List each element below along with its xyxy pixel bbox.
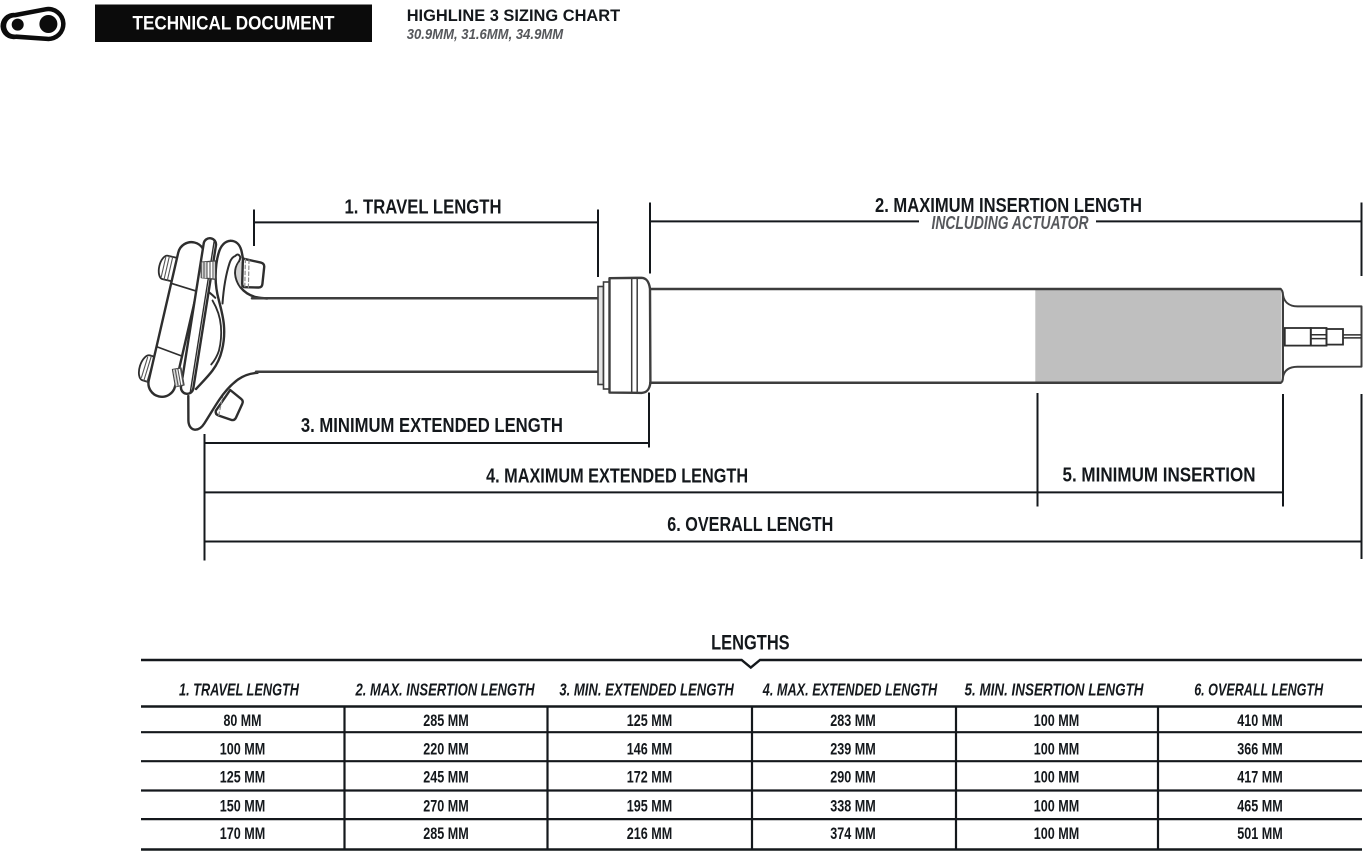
svg-text:HIGHLINE 3 SIZING CHART: HIGHLINE 3 SIZING CHART [407, 6, 621, 25]
svg-text:LENGTHS: LENGTHS [711, 631, 790, 654]
svg-text:100 MM: 100 MM [1034, 740, 1080, 758]
svg-text:INCLUDING ACTUATOR: INCLUDING ACTUATOR [932, 213, 1089, 233]
svg-text:100 MM: 100 MM [220, 740, 266, 758]
svg-text:1. TRAVEL LENGTH: 1. TRAVEL LENGTH [179, 680, 299, 700]
svg-text:374 MM: 374 MM [830, 825, 876, 843]
svg-text:100 MM: 100 MM [1034, 798, 1080, 816]
svg-text:170 MM: 170 MM [220, 825, 266, 843]
svg-text:216 MM: 216 MM [627, 825, 673, 843]
svg-text:270 MM: 270 MM [423, 798, 469, 816]
svg-text:TECHNICAL DOCUMENT: TECHNICAL DOCUMENT [133, 14, 335, 35]
svg-text:172 MM: 172 MM [627, 769, 673, 787]
svg-text:125 MM: 125 MM [220, 769, 266, 787]
svg-text:3. MIN. EXTENDED LENGTH: 3. MIN. EXTENDED LENGTH [559, 680, 734, 700]
svg-text:285 MM: 285 MM [423, 825, 469, 843]
svg-text:100 MM: 100 MM [1034, 712, 1080, 730]
svg-text:2. MAX. INSERTION LENGTH: 2. MAX. INSERTION LENGTH [355, 680, 535, 700]
svg-text:410 MM: 410 MM [1237, 712, 1283, 730]
svg-text:6. OVERALL LENGTH: 6. OVERALL LENGTH [1194, 680, 1323, 700]
svg-text:239 MM: 239 MM [830, 740, 876, 758]
svg-text:366 MM: 366 MM [1237, 740, 1283, 758]
svg-text:80 MM: 80 MM [224, 712, 262, 730]
svg-text:30.9MM, 31.6MM, 34.9MM: 30.9MM, 31.6MM, 34.9MM [407, 26, 564, 43]
svg-text:338 MM: 338 MM [830, 798, 876, 816]
svg-text:245 MM: 245 MM [423, 769, 469, 787]
svg-text:195 MM: 195 MM [627, 798, 673, 816]
svg-text:283 MM: 283 MM [830, 712, 876, 730]
svg-text:417 MM: 417 MM [1237, 769, 1283, 787]
svg-text:150 MM: 150 MM [220, 798, 266, 816]
svg-text:4. MAXIMUM EXTENDED LENGTH: 4. MAXIMUM EXTENDED LENGTH [486, 466, 748, 488]
svg-text:1. TRAVEL LENGTH: 1. TRAVEL LENGTH [345, 197, 502, 219]
svg-text:465 MM: 465 MM [1237, 798, 1283, 816]
svg-text:5. MINIMUM INSERTION: 5. MINIMUM INSERTION [1063, 465, 1256, 487]
svg-text:100 MM: 100 MM [1034, 769, 1080, 787]
svg-text:4. MAX. EXTENDED LENGTH: 4. MAX. EXTENDED LENGTH [762, 680, 937, 700]
svg-text:146 MM: 146 MM [627, 740, 673, 758]
svg-text:290 MM: 290 MM [830, 769, 876, 787]
svg-text:220 MM: 220 MM [423, 740, 469, 758]
svg-text:285 MM: 285 MM [423, 712, 469, 730]
svg-text:5. MIN. INSERTION LENGTH: 5. MIN. INSERTION LENGTH [965, 680, 1144, 700]
svg-text:6. OVERALL LENGTH: 6. OVERALL LENGTH [667, 514, 833, 536]
svg-text:501 MM: 501 MM [1237, 825, 1283, 843]
svg-text:100 MM: 100 MM [1034, 825, 1080, 843]
svg-text:3. MINIMUM EXTENDED LENGTH: 3. MINIMUM EXTENDED LENGTH [301, 415, 563, 437]
svg-text:125 MM: 125 MM [627, 712, 673, 730]
